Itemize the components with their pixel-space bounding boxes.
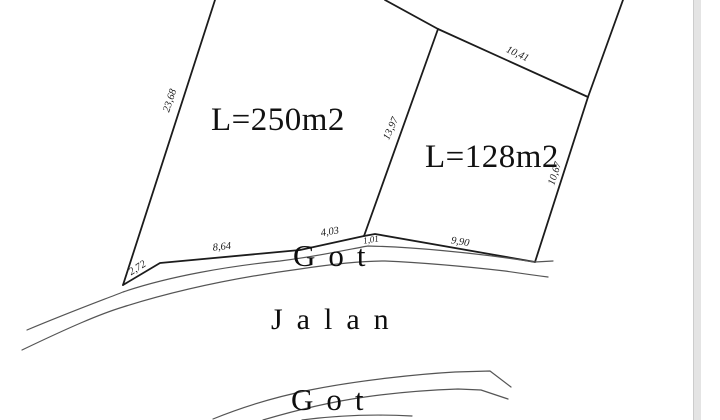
dimension-label-bottom-edge-2: 8,64	[212, 242, 231, 254]
parcel-area-label-128: L=128m2	[425, 139, 559, 175]
plot-sketch-lines	[0, 0, 720, 420]
parcel-left-edge-line	[123, 0, 215, 285]
scrollbar-track[interactable]	[693, 0, 701, 420]
parcel-divider-line	[364, 29, 438, 236]
parcel-right-edge-line	[535, 0, 623, 262]
ditch-label-top: Got	[293, 239, 379, 273]
parcel-top-right-edge-line	[438, 29, 588, 97]
parcel-top-link-line	[385, 0, 438, 29]
ditch-label-bottom: Got	[291, 383, 377, 417]
road-label: Jalan	[271, 303, 403, 336]
parcel-area-label-250: L=250m2	[211, 102, 345, 138]
land-survey-image: L=250m2 L=128m2 23,68 13,97 10,41 10,67 …	[0, 0, 720, 420]
